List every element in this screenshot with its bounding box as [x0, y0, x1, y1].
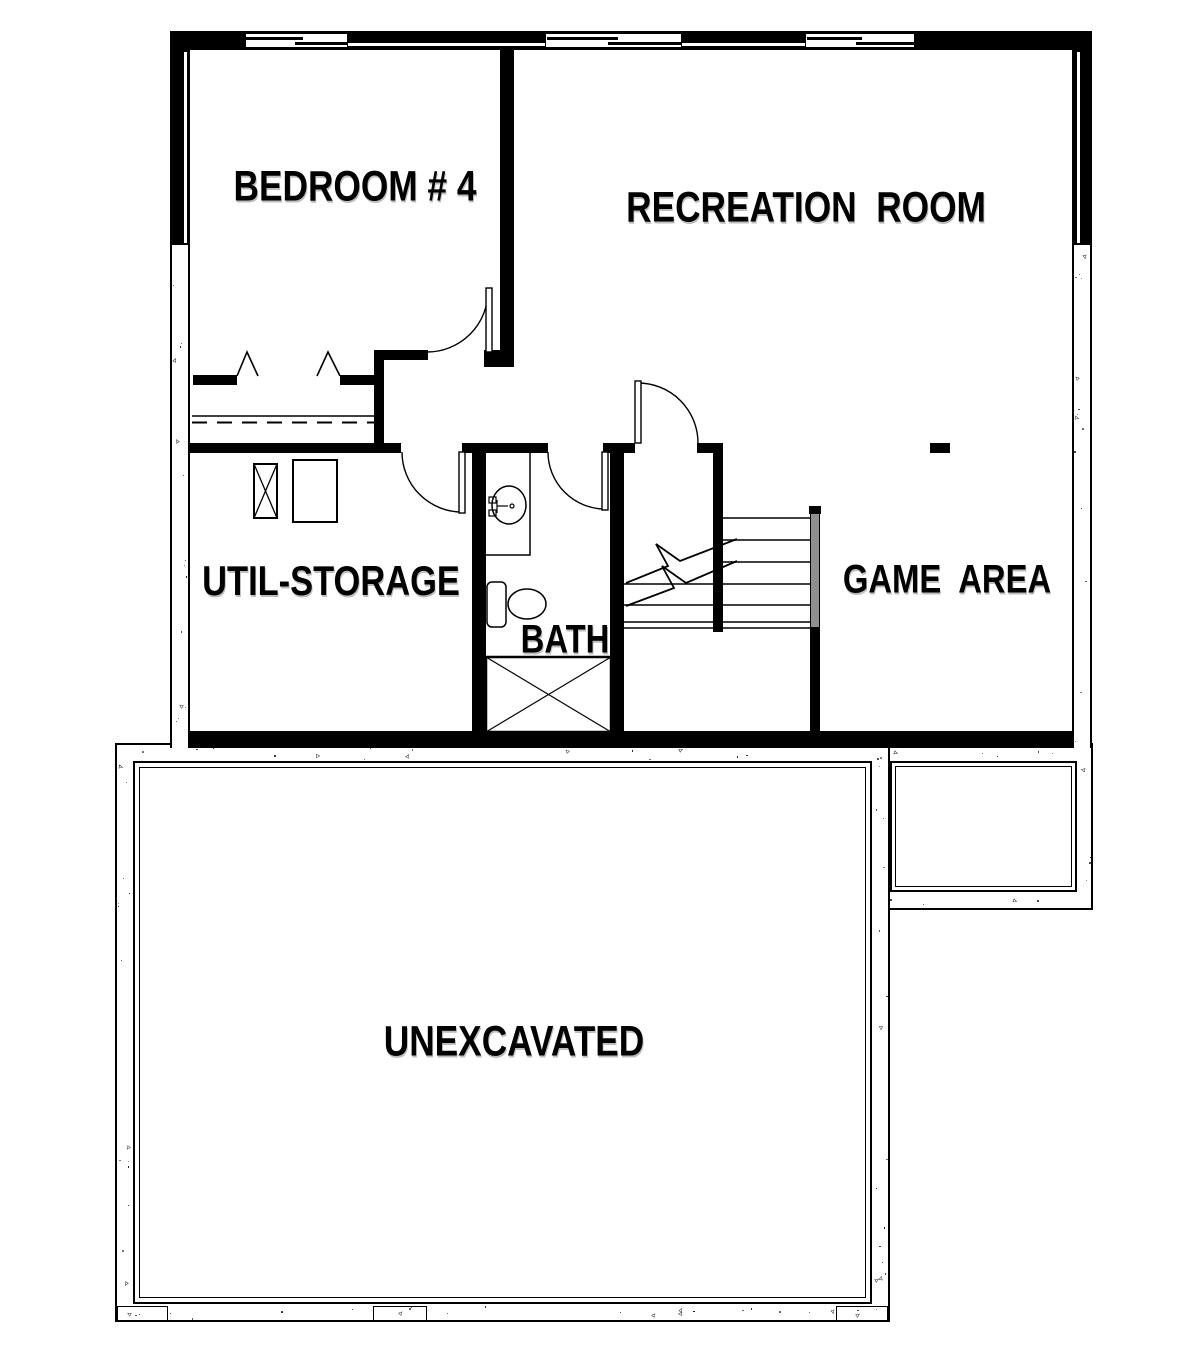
concrete-aggregate-dot	[118, 903, 119, 904]
concrete-aggregate-dot	[1038, 751, 1040, 753]
exterior-wall-bottom	[188, 731, 1092, 748]
util-door-leaf	[459, 452, 465, 513]
extension-band-right: ▵	[1079, 761, 1093, 910]
room-label-game-area: GAME AREA	[843, 558, 1051, 603]
bath-door-leaf	[602, 452, 608, 510]
concrete-aggregate-dot	[1089, 862, 1091, 864]
concrete-aggregate-dot	[1077, 414, 1078, 415]
concrete-aggregate-dot	[447, 1313, 449, 1315]
concrete-aggregate-triangle: ▵	[172, 355, 179, 364]
window-1-sash-a	[245, 37, 303, 40]
concrete-aggregate-triangle: ▵	[1079, 767, 1087, 772]
dryer-icon	[293, 460, 337, 522]
concrete-aggregate-dot	[185, 560, 187, 562]
concrete-aggregate-dot	[886, 1159, 888, 1161]
concrete-aggregate-dot	[649, 759, 651, 761]
concrete-aggregate-dot	[876, 1309, 877, 1310]
window-2-sash-a	[547, 37, 618, 40]
concrete-aggregate-dot	[883, 818, 884, 819]
concrete-aggregate-dot	[485, 1306, 487, 1308]
concrete-aggregate-triangle: ▵	[124, 1144, 132, 1153]
window-3-sash-a	[807, 37, 862, 40]
concrete-aggregate-triangle: ▵	[314, 754, 322, 758]
concrete-aggregate-dot	[185, 707, 186, 708]
concrete-aggregate-triangle: ▵	[123, 1279, 130, 1288]
concrete-aggregate-dot	[1074, 451, 1076, 453]
wall-bath-right	[610, 452, 624, 742]
concrete-aggregate-dot	[1037, 900, 1039, 902]
concrete-aggregate-dot	[186, 576, 188, 578]
concrete-aggregate-triangle: ▵	[879, 1024, 883, 1032]
wall-closet-front-left	[193, 375, 237, 385]
concrete-aggregate-dot	[997, 756, 998, 757]
concrete-aggregate-dot	[1052, 753, 1053, 754]
concrete-aggregate-triangle: ▵	[117, 764, 126, 770]
concrete-aggregate-dot	[883, 867, 885, 869]
bedroom-door-leaf	[486, 288, 492, 352]
window-3-icon	[805, 33, 915, 48]
concrete-aggregate-dot	[1082, 428, 1084, 430]
concrete-aggregate-dot	[183, 475, 184, 476]
room-label-bedroom4: BEDROOM # 4	[234, 163, 477, 212]
concrete-aggregate-dot	[877, 758, 879, 760]
concrete-aggregate-triangle: ▵	[853, 1311, 862, 1319]
window-1-icon	[245, 33, 348, 48]
footing-pier-right: ▵	[836, 1306, 888, 1321]
concrete-aggregate-triangle: ▵	[176, 702, 185, 710]
sill-line-1	[348, 43, 545, 46]
concrete-aggregate-dot	[128, 1161, 129, 1162]
extension-inner-edge-2	[895, 766, 1072, 887]
exterior-wall-left-framed	[170, 31, 190, 245]
wall-bedroom-south-jamb	[484, 350, 514, 367]
concrete-aggregate-dot	[809, 1312, 811, 1314]
shower-icon	[486, 657, 611, 732]
concrete-aggregate-dot	[126, 782, 127, 783]
concrete-aggregate-triangle: ▵	[1081, 253, 1087, 262]
concrete-aggregate-triangle: ▵	[124, 1310, 133, 1318]
concrete-aggregate-dot	[122, 1250, 124, 1252]
sill-line-2	[682, 43, 805, 46]
concrete-aggregate-dot	[879, 930, 881, 932]
concrete-aggregate-dot	[184, 565, 185, 566]
concrete-aggregate-dot	[118, 906, 119, 907]
concrete-aggregate-dot	[364, 759, 365, 760]
concrete-aggregate-dot	[170, 1313, 171, 1314]
concrete-aggregate-dot	[1090, 857, 1092, 859]
foundation-band-bottom: ▵▵▵▵	[117, 1306, 870, 1321]
concrete-aggregate-dot	[779, 1311, 781, 1313]
wall-stair	[713, 452, 723, 632]
concrete-aggregate-dot	[129, 893, 130, 894]
bifold-door-icons	[237, 352, 340, 376]
exterior-wall-right-framed	[1072, 31, 1092, 245]
concrete-aggregate-triangle: ▵	[404, 751, 411, 760]
concrete-aggregate-dot	[882, 1262, 883, 1263]
concrete-aggregate-dot	[876, 1188, 877, 1189]
concrete-aggregate-dot	[737, 756, 739, 758]
concrete-aggregate-dot	[1075, 741, 1076, 742]
bath-door-swing	[548, 452, 605, 509]
handrail-end-cap	[809, 506, 821, 514]
window-1-sash-b	[295, 42, 348, 45]
concrete-aggregate-dot	[173, 285, 174, 286]
concrete-aggregate-dot	[142, 751, 144, 753]
concrete-aggregate-triangle: ▵	[878, 1274, 884, 1283]
concrete-aggregate-dot	[876, 809, 878, 811]
concrete-aggregate-dot	[352, 1309, 353, 1310]
bedroom-door-swing	[427, 291, 488, 352]
concrete-aggregate-triangle: ▵	[891, 749, 900, 756]
footing-pier-middle: ▵	[373, 1306, 427, 1321]
right-wall-stud-line	[1077, 52, 1080, 243]
room-label-recreation: RECREATION ROOM	[626, 184, 986, 233]
concrete-aggregate-dot	[1086, 880, 1087, 881]
handrail-icon	[810, 508, 820, 628]
concrete-aggregate-dot	[181, 631, 183, 633]
concrete-aggregate-dot	[176, 721, 177, 722]
extension-band-top: ▵	[890, 748, 1093, 761]
concrete-aggregate-dot	[192, 1318, 194, 1320]
concrete-aggregate-dot	[178, 718, 180, 720]
concrete-aggregate-dot	[123, 878, 124, 879]
foundation-band-left: ▵▵▵	[117, 761, 133, 1304]
concrete-aggregate-dot	[139, 1314, 140, 1315]
concrete-aggregate-dot	[1081, 508, 1082, 509]
concrete-aggregate-dot	[411, 1307, 412, 1308]
room-label-util-storage: UTIL-STORAGE	[202, 557, 460, 605]
concrete-aggregate-dot	[128, 1205, 129, 1206]
window-2-sash-b	[608, 42, 682, 45]
concrete-aggregate-dot	[885, 1273, 887, 1275]
door-swing-arcs	[402, 291, 698, 512]
foundation-wall-right-fill: ▵▵▵	[1074, 247, 1090, 746]
support-post-icon	[930, 443, 950, 453]
concrete-aggregate-dot	[693, 1311, 695, 1313]
concrete-aggregate-triangle: ▵	[563, 747, 571, 755]
concrete-aggregate-dot	[180, 346, 182, 348]
concrete-aggregate-dot	[879, 766, 880, 767]
concrete-aggregate-dot	[1081, 278, 1082, 279]
concrete-aggregate-dot	[181, 343, 182, 344]
room-label-unexcavated: UNEXCAVATED	[384, 1018, 645, 1067]
stairhall-door-swing	[638, 383, 698, 443]
concrete-aggregate-dot	[879, 1246, 881, 1248]
concrete-aggregate-dot	[632, 750, 634, 752]
wall-closet-front-right	[340, 375, 374, 385]
concrete-aggregate-dot	[742, 1310, 744, 1312]
concrete-aggregate-dot	[412, 749, 414, 751]
concrete-aggregate-dot	[128, 1166, 130, 1168]
concrete-aggregate-dot	[135, 1315, 137, 1317]
concrete-aggregate-dot	[890, 899, 892, 901]
concrete-aggregate-triangle: ▵	[397, 1308, 405, 1317]
concrete-aggregate-dot	[1075, 277, 1077, 279]
concrete-aggregate-dot	[370, 748, 371, 749]
closet-shelf-icon	[192, 416, 374, 423]
stairhall-door-leaf	[635, 381, 641, 443]
foundation-band-right: ▵▵▵	[874, 761, 890, 1322]
wall-bedroom-recroom-divider	[500, 50, 514, 360]
concrete-aggregate-dot	[1085, 581, 1087, 583]
footing-pier-left: ▵	[117, 1306, 168, 1321]
concrete-aggregate-triangle: ▵	[1011, 898, 1020, 905]
concrete-aggregate-dot	[409, 1308, 411, 1310]
wall-under-railing	[810, 628, 820, 742]
concrete-aggregate-triangle: ▵	[1074, 373, 1082, 381]
sink-icon	[486, 452, 530, 555]
concrete-aggregate-dot	[886, 996, 888, 998]
concrete-aggregate-dot	[746, 755, 748, 757]
concrete-aggregate-dot	[1080, 692, 1082, 694]
concrete-aggregate-dot	[1079, 274, 1080, 275]
wall-main-corridor-a	[188, 443, 401, 453]
concrete-aggregate-dot	[880, 757, 882, 759]
concrete-aggregate-dot	[982, 753, 984, 755]
basement-floor-plan: ▵▵▵▵ ▵▵▵ ▵▵▵▵ ▵▵▵ ▵ ▵ ▵ ▵ ▵ ▵ ▵▵▵ ▵▵▵	[0, 0, 1178, 1350]
util-door-swing	[402, 452, 462, 512]
wall-bath-left	[472, 452, 486, 742]
concrete-aggregate-dot	[923, 904, 924, 905]
concrete-aggregate-triangle: ▵	[173, 437, 181, 446]
room-label-bath: BATH	[521, 618, 610, 663]
concrete-aggregate-dot	[884, 1227, 886, 1229]
extension-band-bottom: ▵	[890, 894, 1077, 908]
concrete-aggregate-triangle: ▵	[650, 1310, 658, 1319]
window-2-icon	[545, 33, 682, 48]
washer-icon	[254, 464, 277, 518]
left-wall-stud-line	[184, 52, 187, 243]
concrete-aggregate-dot	[274, 755, 276, 757]
concrete-aggregate-dot	[1078, 409, 1080, 411]
window-3-sash-b	[856, 42, 915, 45]
concrete-aggregate-dot	[751, 1308, 753, 1310]
concrete-aggregate-dot	[119, 1160, 121, 1162]
foundation-wall-left-fill: ▵▵▵	[172, 247, 188, 746]
concrete-aggregate-dot	[281, 1311, 283, 1313]
wall-closet-side	[374, 350, 384, 453]
concrete-aggregate-dot	[121, 960, 122, 961]
concrete-aggregate-dot	[620, 1312, 621, 1313]
concrete-aggregate-dot	[196, 749, 198, 751]
concrete-aggregate-triangle: ▵	[1074, 415, 1082, 421]
